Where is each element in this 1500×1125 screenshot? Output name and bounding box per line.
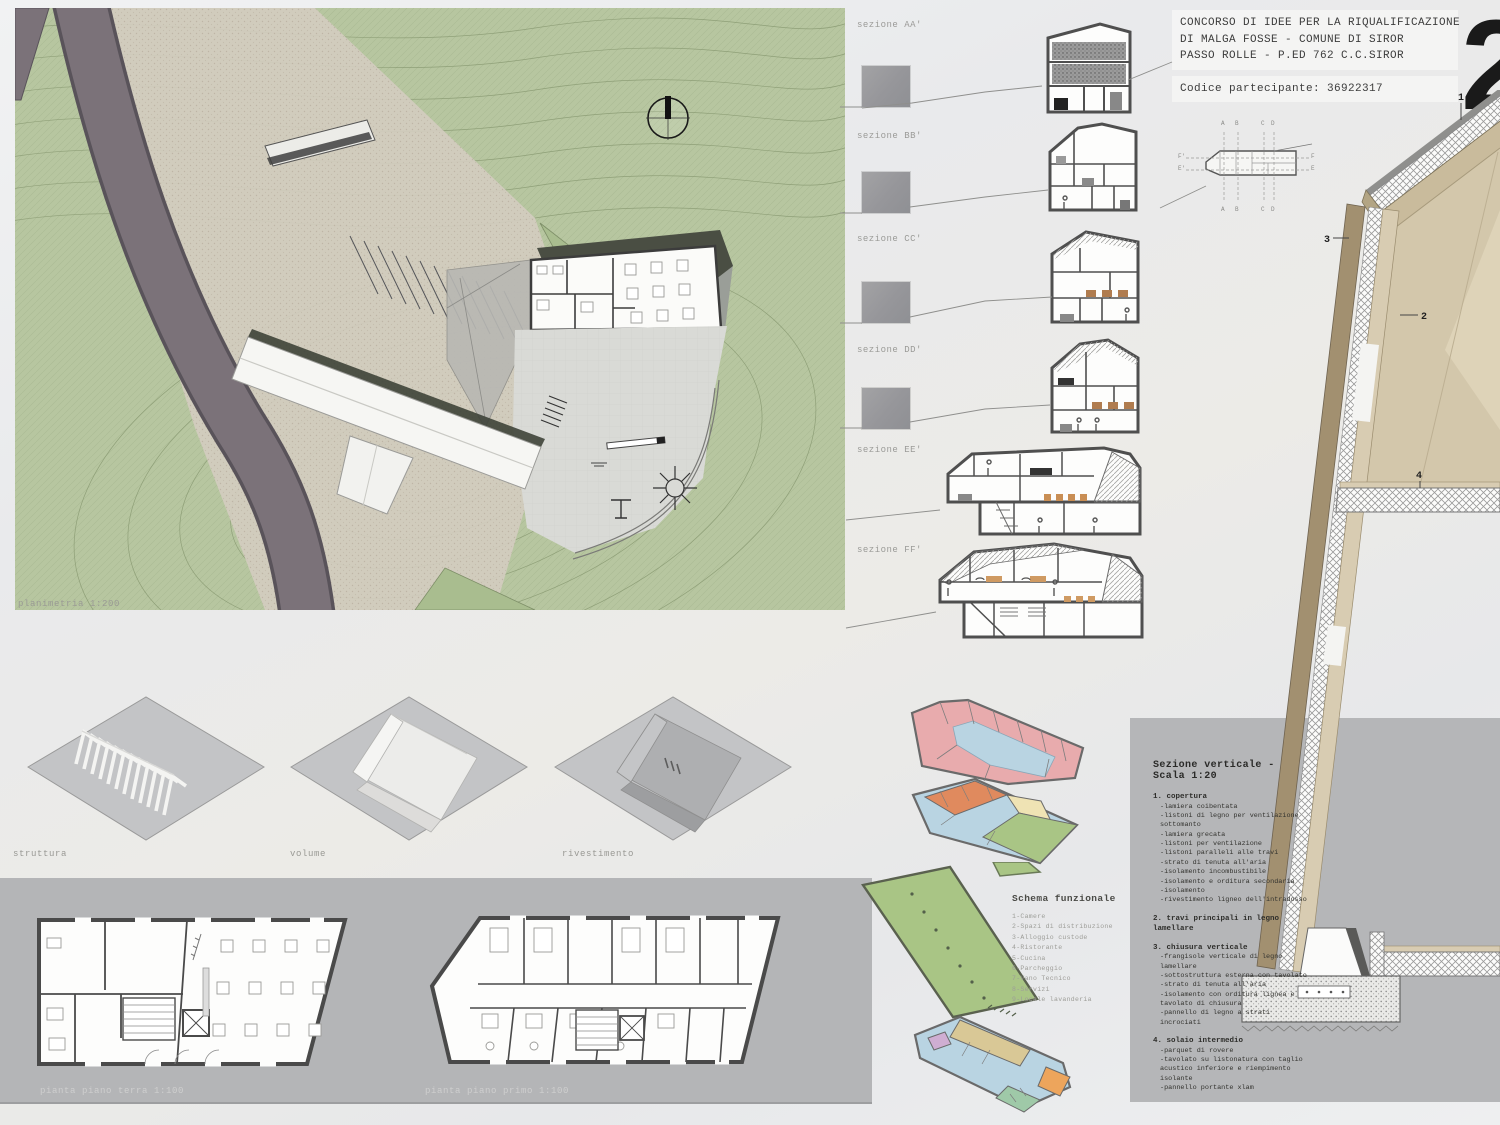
massing-label-rivestimento: rivestimento xyxy=(562,849,634,859)
plan-first-floor xyxy=(420,898,820,1078)
section-photo-aa xyxy=(862,66,910,107)
site-plan: planimetria 1:200 xyxy=(15,8,845,610)
title-line-1: CONCORSO DI IDEE PER LA RIQUALIFICAZIONE xyxy=(1180,15,1450,32)
list-item: 1-Camere xyxy=(1012,912,1150,922)
title-line-2: DI MALGA FOSSE - COMUNE DI SIROR xyxy=(1180,32,1450,49)
svg-text:3: 3 xyxy=(1324,235,1330,246)
legend-sub-item: -frangisole verticale di legno lamellare xyxy=(1153,953,1311,972)
massing-struttura xyxy=(18,672,268,852)
legend-sub-item: -rivestimento ligneo dell'intradosso xyxy=(1153,896,1311,905)
section-photo-dd xyxy=(862,388,910,429)
plan-interrato xyxy=(915,1017,1070,1112)
list-item: 8-Servizi xyxy=(1012,985,1150,995)
section-bb-drawing xyxy=(1044,122,1144,220)
ground-slab xyxy=(1382,946,1500,976)
section-label-ff: sezione FF' xyxy=(857,545,922,555)
legend-sub-item: -parquet di rovere xyxy=(1153,1047,1311,1056)
section-photo-bb xyxy=(862,172,910,213)
section-label-aa: sezione AA' xyxy=(857,20,922,30)
section-ff-drawing xyxy=(934,540,1149,645)
massing-rivestimento xyxy=(545,672,795,852)
section-label-bb: sezione BB' xyxy=(857,131,922,141)
legend-sub-item: -isolamento e orditura secondaria xyxy=(1153,878,1311,887)
list-item: 9-Locale lavanderia xyxy=(1012,995,1150,1005)
legend-sub-item: -tavolato su listonatura con taglio acus… xyxy=(1153,1056,1311,1084)
competition-title: CONCORSO DI IDEE PER LA RIQUALIFICAZIONE… xyxy=(1172,10,1458,70)
legend-sub-item: -strato di tenuta all'aria xyxy=(1153,859,1311,868)
roof-plan-sliver xyxy=(993,862,1040,876)
legend-item: 2. travi principali in legno lamellare xyxy=(1153,914,1311,935)
section-label-ee: sezione EE' xyxy=(857,445,922,455)
section-label-dd: sezione DD' xyxy=(857,345,922,355)
massing-label-volume: volume xyxy=(290,849,326,859)
plan-parcheggio xyxy=(863,867,1037,1017)
legend-item: 1. copertura-lamiera coibentata-listoni … xyxy=(1153,792,1311,906)
list-item: 4-Ristorante xyxy=(1012,943,1150,953)
legend-label: 2. travi principali in legno lamellare xyxy=(1153,914,1311,935)
section-label-cc: sezione CC' xyxy=(857,234,922,244)
plan-camere xyxy=(912,700,1083,784)
legend-sub-item: -pannello di legno a strati incrociati xyxy=(1153,1009,1311,1028)
svg-text:2: 2 xyxy=(1421,312,1427,323)
legend-label: 3. chiusura verticale xyxy=(1153,943,1311,954)
legend-sub-item: -lamiera grecata xyxy=(1153,831,1311,840)
legend-sub-item: -listoni per ventilazione xyxy=(1153,840,1311,849)
massing-diagrams xyxy=(18,672,758,867)
massing-label-struttura: struttura xyxy=(13,849,67,859)
detail-legend-title: Sezione verticale - Scala 1:20 xyxy=(1153,760,1311,782)
legend-label: 1. copertura xyxy=(1153,792,1311,803)
list-item: 6-Parcheggio xyxy=(1012,964,1150,974)
competition-board: { "header": { "title_line1": "CONCORSO D… xyxy=(0,0,1500,1125)
section-photo-cc xyxy=(862,282,910,323)
list-item: 3-Alloggio custode xyxy=(1012,933,1150,943)
legend-item: 4. solaio intermedio-parquet di rovere-t… xyxy=(1153,1036,1311,1093)
plan-piano-terra-colori xyxy=(913,779,1077,863)
legend-sub-item: -sottostruttura esterna con tavolato xyxy=(1153,972,1311,981)
site-plan-caption: planimetria 1:200 xyxy=(18,599,120,609)
intermediate-floor xyxy=(1336,482,1500,512)
list-item: 5-Cucina xyxy=(1012,954,1150,964)
plan-ground-floor xyxy=(25,898,385,1078)
title-line-3: PASSO ROLLE - P.ED 762 C.C.SIROR xyxy=(1180,48,1450,65)
section-ee-drawing xyxy=(944,444,1149,542)
legend-sub-item: -listoni paralleli alle travi xyxy=(1153,849,1311,858)
list-item: 7-Vano Tecnico xyxy=(1012,974,1150,984)
list-item: 2-Spazi di distribuzione xyxy=(1012,922,1150,932)
caption-first-floor: pianta piano primo 1:100 xyxy=(425,1086,569,1096)
exploded-plans-upper xyxy=(895,685,1095,880)
legend-sub-item: -isolamento con orditura lignea e tavola… xyxy=(1153,991,1311,1010)
legend-sub-item: -listoni di legno per ventilazione sotto… xyxy=(1153,812,1311,831)
massing-volume xyxy=(281,672,531,852)
legend-sub-item: -isolamento xyxy=(1153,887,1311,896)
schema-funzionale-title: Schema funzionale xyxy=(1012,893,1150,904)
schema-funzionale-list: 1-Camere2-Spazi di distribuzione3-Allogg… xyxy=(1012,912,1150,1006)
svg-text:4: 4 xyxy=(1416,471,1422,482)
legend-sub-item: -pannello portante xlam xyxy=(1153,1084,1311,1093)
caption-ground-floor: pianta piano terra 1:100 xyxy=(40,1086,184,1096)
legend-sub-item: -isolamento incombustibile xyxy=(1153,868,1311,877)
svg-text:1: 1 xyxy=(1458,93,1464,104)
title-block: CONCORSO DI IDEE PER LA RIQUALIFICAZIONE… xyxy=(1172,10,1458,102)
legend-sub-item: -lamiera coibentata xyxy=(1153,803,1311,812)
schema-funzionale: Schema funzionale 1-Camere2-Spazi di dis… xyxy=(1012,893,1150,1006)
detail-legend-items: 1. copertura-lamiera coibentata-listoni … xyxy=(1153,792,1311,1094)
site-plan-drawing xyxy=(15,8,845,610)
cutaway-floor-plan xyxy=(531,246,721,330)
detail-legend: Sezione verticale - Scala 1:20 1. copert… xyxy=(1153,760,1311,1102)
legend-item: 3. chiusura verticale-frangisole vertica… xyxy=(1153,943,1311,1029)
legend-label: 4. solaio intermedio xyxy=(1153,1036,1311,1047)
legend-sub-item: -strato di tenuta all'aria xyxy=(1153,981,1311,990)
